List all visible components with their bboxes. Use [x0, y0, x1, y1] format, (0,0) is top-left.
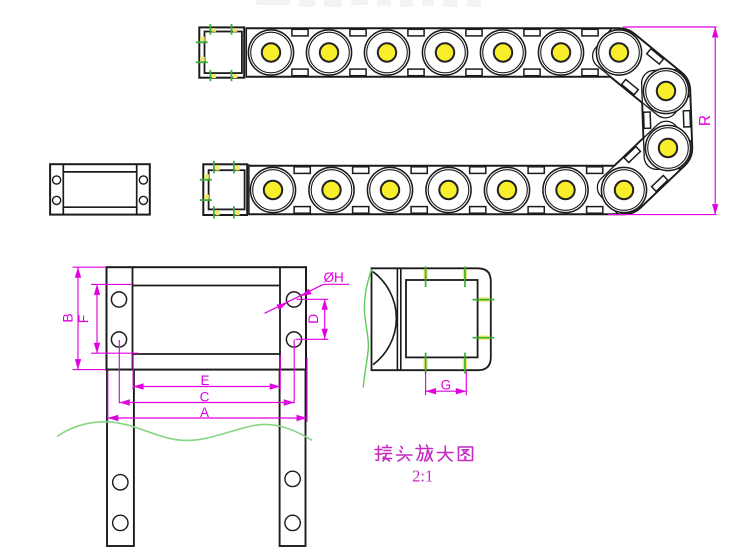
svg-text:2:1: 2:1	[412, 467, 433, 486]
svg-text:C: C	[200, 389, 210, 404]
svg-text:F: F	[75, 315, 91, 324]
svg-text:A: A	[200, 405, 209, 420]
svg-text:ØH: ØH	[324, 270, 344, 285]
svg-text:B: B	[60, 313, 76, 322]
svg-text:D: D	[305, 314, 321, 324]
svg-text:E: E	[200, 373, 209, 388]
svg-text:R: R	[697, 115, 714, 126]
svg-text:G: G	[441, 377, 452, 392]
